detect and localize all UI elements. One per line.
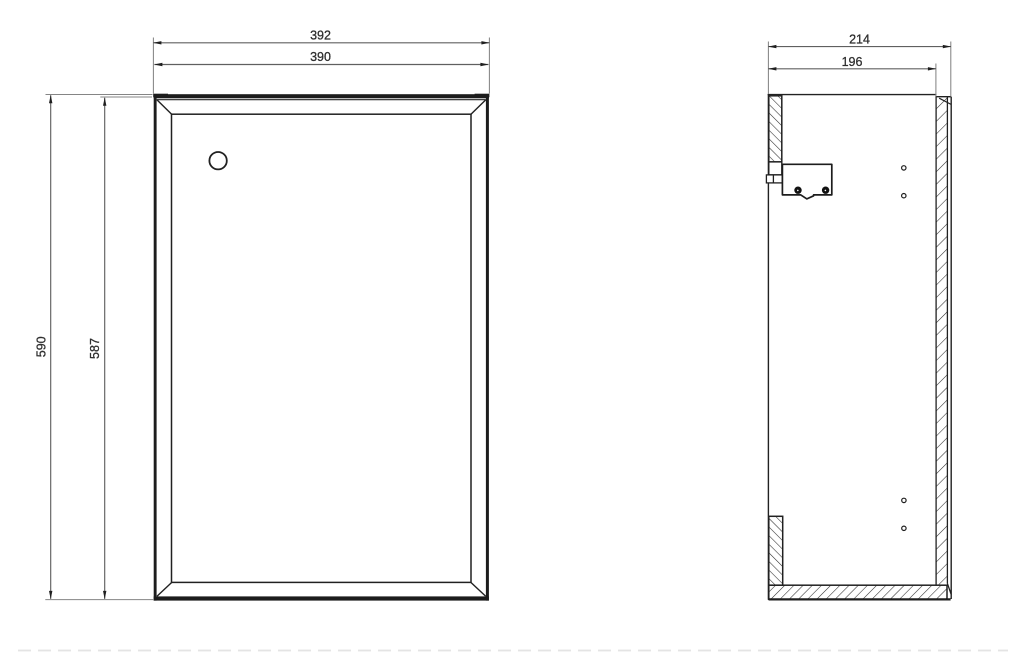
svg-text:587: 587 [88,338,102,359]
svg-text:392: 392 [310,29,331,43]
svg-text:390: 390 [310,50,331,64]
svg-text:590: 590 [35,336,49,357]
svg-text:214: 214 [849,33,870,47]
svg-text:196: 196 [842,55,863,69]
